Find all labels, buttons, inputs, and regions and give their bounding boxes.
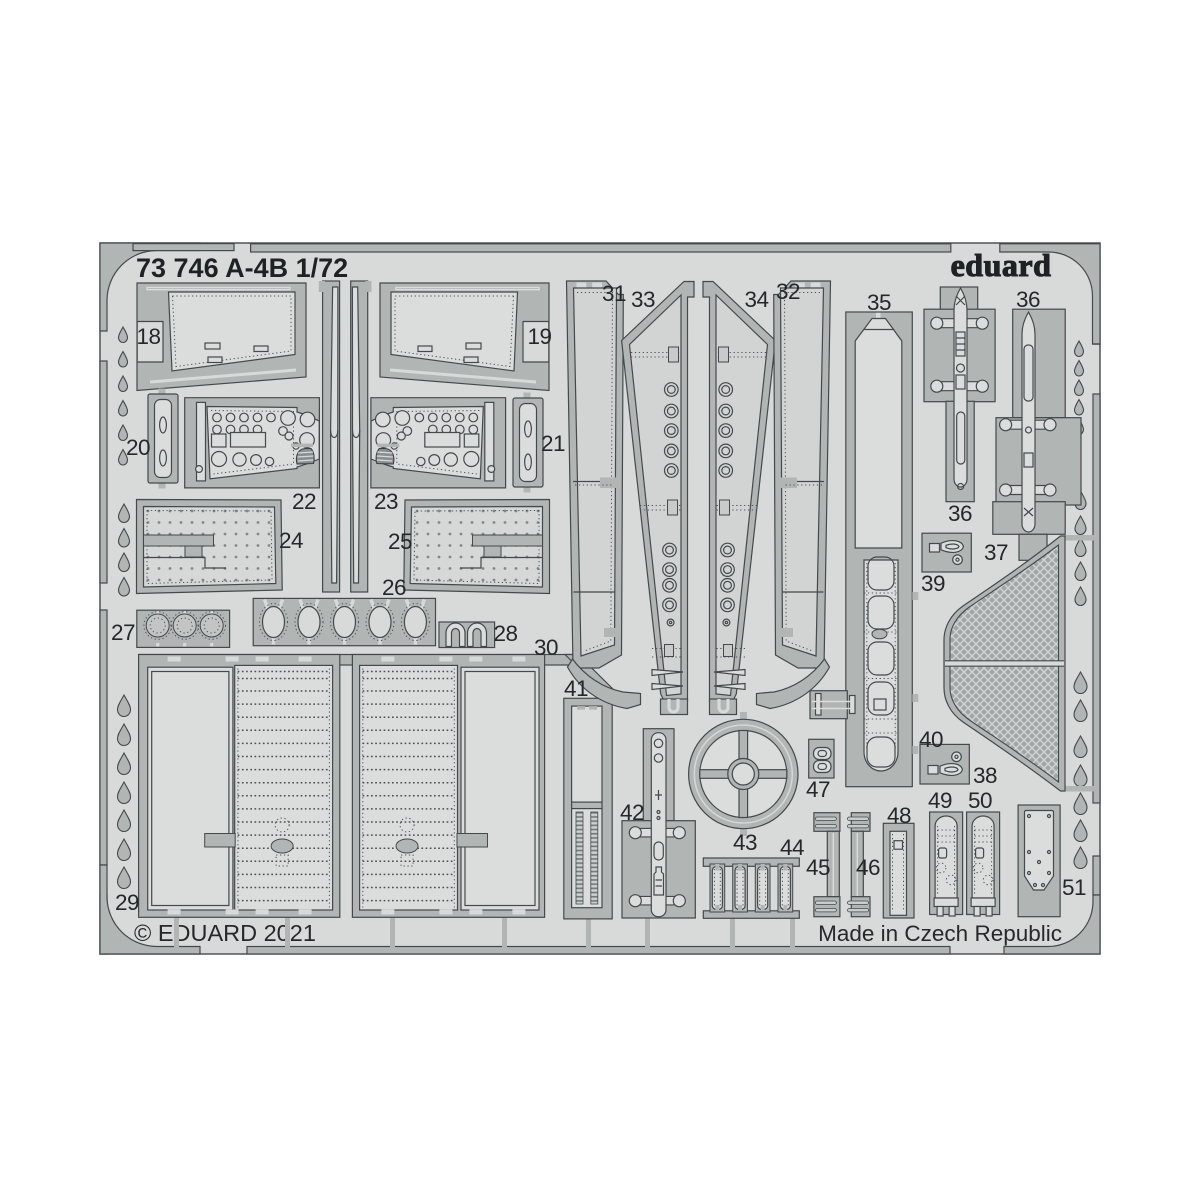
svg-text:23: 23 bbox=[374, 489, 398, 514]
svg-text:49: 49 bbox=[928, 788, 952, 813]
svg-text:33: 33 bbox=[631, 287, 655, 312]
svg-text:22: 22 bbox=[292, 489, 316, 514]
svg-text:43: 43 bbox=[733, 830, 757, 855]
svg-text:31: 31 bbox=[602, 281, 626, 306]
svg-text:eduard: eduard bbox=[951, 247, 1052, 283]
svg-text:35: 35 bbox=[867, 290, 891, 315]
svg-text:73 746 A-4B 1/72: 73 746 A-4B 1/72 bbox=[136, 253, 348, 283]
svg-text:37: 37 bbox=[984, 540, 1008, 565]
svg-text:45: 45 bbox=[806, 855, 830, 880]
svg-text:50: 50 bbox=[968, 788, 992, 813]
svg-text:25: 25 bbox=[388, 529, 412, 554]
svg-text:36: 36 bbox=[1016, 287, 1040, 312]
svg-text:32: 32 bbox=[776, 279, 800, 304]
svg-text:27: 27 bbox=[111, 620, 135, 645]
svg-text:40: 40 bbox=[919, 727, 943, 752]
svg-text:42: 42 bbox=[620, 800, 644, 825]
svg-text:34: 34 bbox=[744, 287, 768, 312]
svg-text:29: 29 bbox=[115, 890, 139, 915]
svg-text:19: 19 bbox=[527, 324, 551, 349]
svg-text:39: 39 bbox=[921, 571, 945, 596]
svg-text:47: 47 bbox=[806, 777, 830, 802]
svg-text:38: 38 bbox=[973, 763, 997, 788]
svg-text:30: 30 bbox=[534, 635, 558, 660]
svg-text:26: 26 bbox=[382, 575, 406, 600]
svg-text:21: 21 bbox=[541, 431, 565, 456]
svg-text:51: 51 bbox=[1062, 875, 1086, 900]
svg-text:41: 41 bbox=[564, 676, 588, 701]
svg-text:20: 20 bbox=[126, 435, 150, 460]
svg-text:24: 24 bbox=[279, 528, 303, 553]
svg-text:48: 48 bbox=[887, 803, 911, 828]
svg-text:36: 36 bbox=[948, 501, 972, 526]
svg-text:18: 18 bbox=[136, 324, 160, 349]
svg-text:Made in Czech Republic: Made in Czech Republic bbox=[818, 921, 1062, 946]
svg-text:44: 44 bbox=[780, 835, 804, 860]
svg-text:46: 46 bbox=[856, 855, 880, 880]
svg-text:28: 28 bbox=[493, 621, 517, 646]
